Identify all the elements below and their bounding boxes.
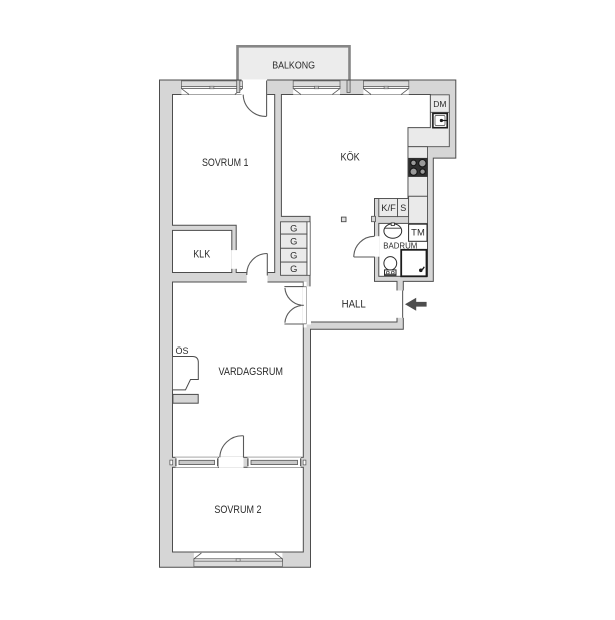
svg-text:BALKONG: BALKONG	[272, 60, 315, 71]
svg-text:G: G	[290, 251, 297, 261]
svg-text:KÖK: KÖK	[341, 151, 361, 163]
svg-text:K/F: K/F	[381, 203, 396, 213]
svg-text:BADRUM: BADRUM	[383, 240, 417, 250]
svg-text:TM: TM	[411, 227, 425, 237]
svg-text:HALL: HALL	[342, 298, 366, 310]
svg-text:KLK: KLK	[193, 248, 211, 260]
svg-text:SOVRUM 1: SOVRUM 1	[202, 157, 249, 169]
svg-text:G: G	[290, 224, 297, 234]
svg-text:ÖS: ÖS	[176, 346, 189, 356]
svg-text:DM: DM	[433, 99, 446, 109]
svg-text:VARDAGSRUM: VARDAGSRUM	[219, 366, 284, 378]
svg-text:SOVRUM 2: SOVRUM 2	[214, 504, 261, 516]
svg-text:G: G	[290, 264, 297, 274]
svg-text:G: G	[290, 237, 297, 247]
svg-text:S: S	[400, 203, 406, 213]
